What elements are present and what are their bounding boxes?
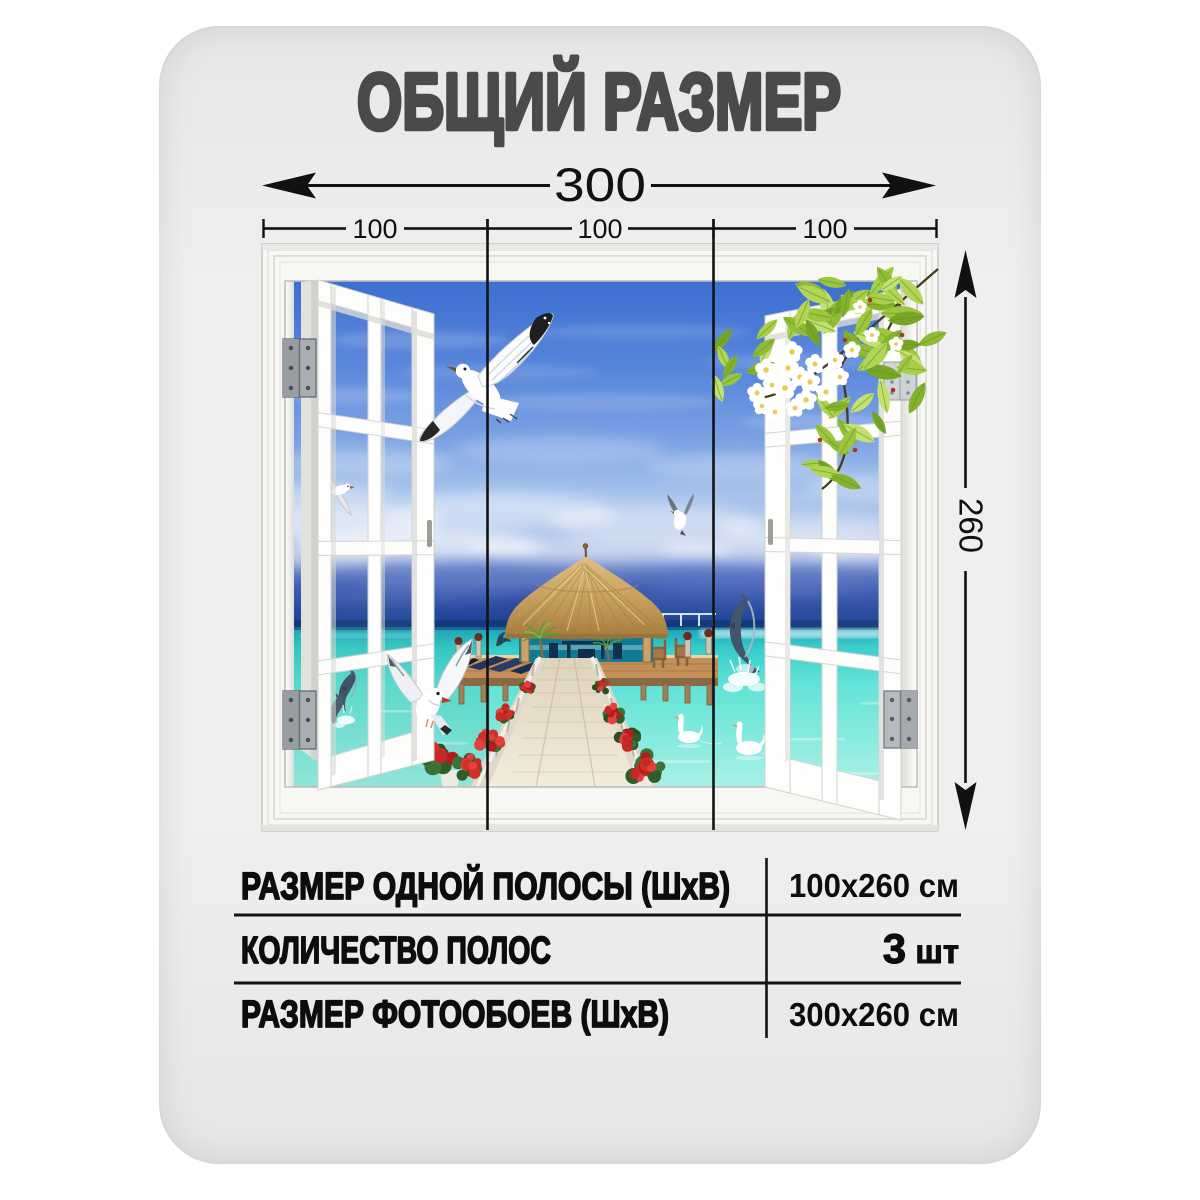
svg-text:260: 260: [953, 498, 990, 553]
svg-text:РАЗМЕР ОДНОЙ ПОЛОСЫ (ШхВ): РАЗМЕР ОДНОЙ ПОЛОСЫ (ШхВ): [241, 863, 730, 908]
svg-text:100: 100: [802, 214, 847, 244]
svg-text:100: 100: [352, 214, 397, 244]
svg-text:300: 300: [554, 158, 646, 211]
svg-text:300х260 см: 300х260 см: [789, 996, 959, 1033]
svg-text:КОЛИЧЕСТВО ПОЛОС: КОЛИЧЕСТВО ПОЛОС: [241, 930, 551, 972]
svg-text:100: 100: [577, 214, 622, 244]
svg-text:ОБЩИЙ РАЗМЕР: ОБЩИЙ РАЗМЕР: [357, 56, 841, 146]
svg-text:100х260 см: 100х260 см: [789, 867, 959, 904]
svg-text:3 шт: 3 шт: [883, 925, 959, 972]
svg-text:РАЗМЕР ФОТООБОЕВ (ШхВ): РАЗМЕР ФОТООБОЕВ (ШхВ): [241, 994, 669, 1036]
